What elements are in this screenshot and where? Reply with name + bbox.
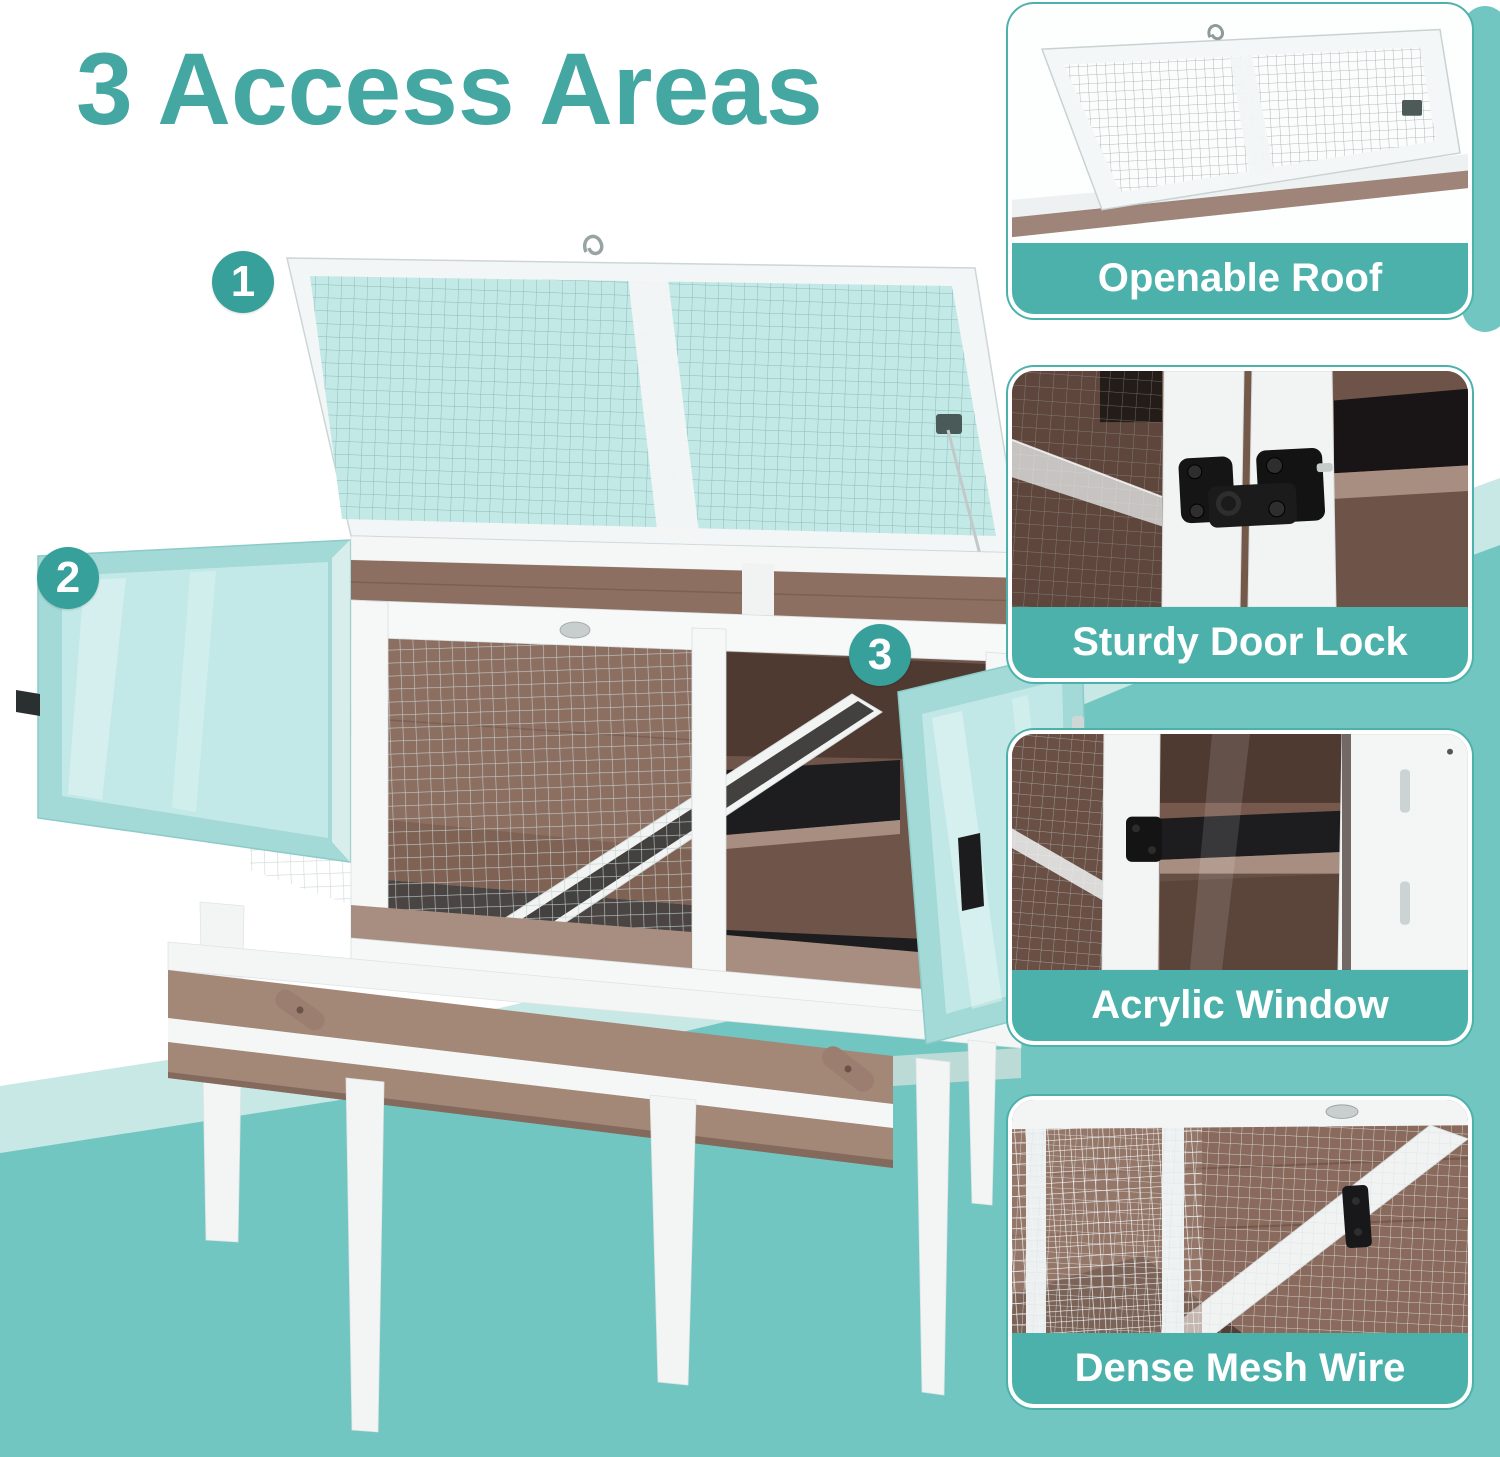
feature-caption: Sturdy Door Lock [1012, 607, 1468, 678]
window-hinge-icon [1126, 817, 1162, 862]
feature-caption: Dense Mesh Wire [1012, 1333, 1468, 1404]
feature-panel-openable-roof: Openable Roof [1008, 4, 1472, 318]
page-title: 3 Access Areas [76, 36, 823, 143]
door-latch-icon [958, 833, 984, 911]
roof-lid [287, 236, 1021, 578]
product-infographic: 3 Access Areas 1 2 3 [0, 0, 1500, 1457]
mesh-latch-icon [1342, 1185, 1372, 1249]
leg-front-left [346, 1078, 384, 1432]
openable-roof-photo [1012, 8, 1468, 243]
mesh-wire-photo [1012, 1100, 1468, 1333]
callout-marker-3: 3 [849, 624, 911, 686]
top-latch-icon [560, 622, 590, 638]
feature-caption: Acrylic Window [1012, 970, 1468, 1041]
roof-latch-icon [1402, 100, 1422, 116]
front-mesh-panel [388, 637, 692, 938]
leg-rear-right [968, 1040, 996, 1205]
feature-panel-mesh-wire: Dense Mesh Wire [1008, 1096, 1472, 1408]
door-lock-photo [1012, 371, 1468, 607]
lock-hardware-icon [1178, 447, 1336, 530]
callout-marker-2: 2 [37, 547, 99, 609]
leg-center [650, 1095, 696, 1385]
feature-caption: Openable Roof [1012, 243, 1468, 314]
callout-marker-1: 1 [212, 251, 274, 313]
acrylic-window-photo [1012, 734, 1468, 970]
callout-number: 2 [56, 553, 80, 603]
leg-right [916, 1058, 950, 1395]
door-knob-icon [16, 690, 40, 716]
callout-number: 3 [868, 630, 892, 680]
feature-panel-acrylic-window: Acrylic Window [1008, 730, 1472, 1045]
callout-number: 1 [231, 257, 255, 307]
feature-panel-door-lock: Sturdy Door Lock [1008, 367, 1472, 682]
rail-latch-icon [1326, 1105, 1358, 1119]
